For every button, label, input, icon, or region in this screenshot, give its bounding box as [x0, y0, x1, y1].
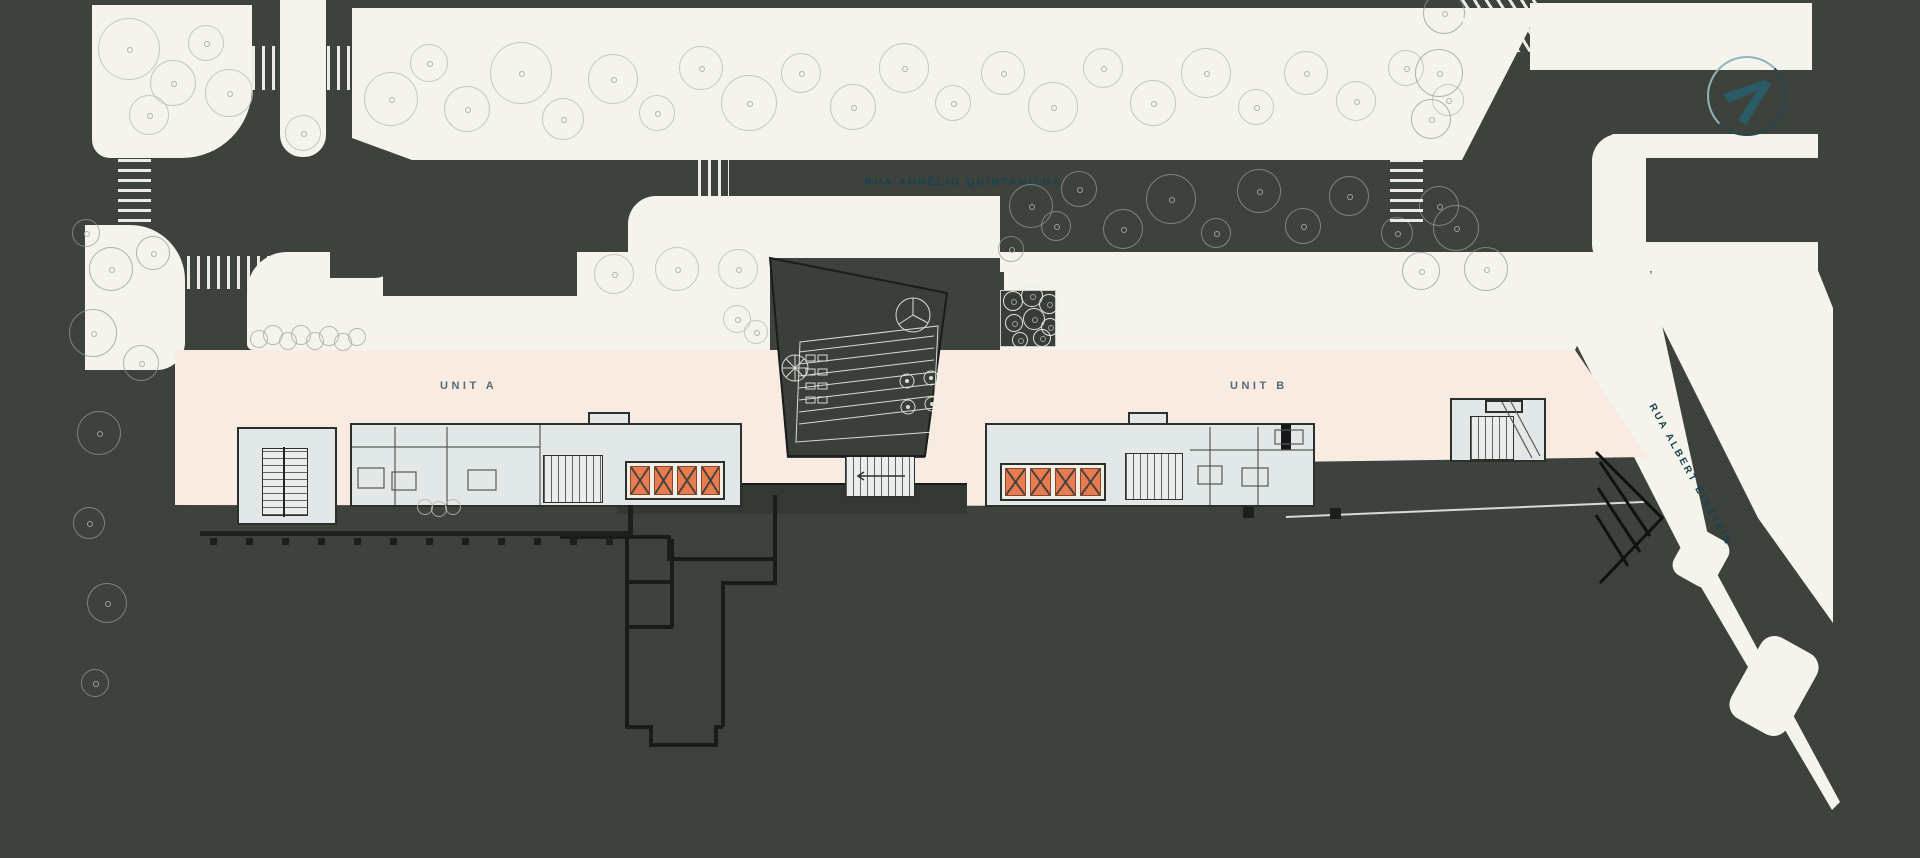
tree-icon — [129, 95, 169, 135]
tree-icon — [1028, 82, 1078, 132]
tree-icon — [1041, 211, 1071, 241]
crosswalk-stripes — [1390, 158, 1423, 222]
elevator-cell — [1055, 468, 1076, 496]
tree-icon — [1083, 48, 1123, 88]
tree-icon — [69, 309, 117, 357]
north-arrow-icon — [1709, 58, 1789, 138]
tree-trunk-dot — [139, 361, 145, 367]
tree-trunk-dot — [93, 681, 99, 687]
tree-icon — [1061, 171, 1097, 207]
tree-trunk-dot — [951, 101, 957, 107]
tree-trunk-dot — [1395, 231, 1401, 237]
tree-trunk-dot — [151, 251, 157, 257]
elevator-cell — [1080, 468, 1101, 496]
tree-icon — [542, 98, 584, 140]
tree-icon — [98, 18, 160, 80]
crosswalk-stripes — [118, 140, 151, 232]
tree-trunk-dot — [799, 71, 805, 77]
tree-trunk-dot — [1254, 105, 1260, 111]
tree-icon — [1146, 174, 1196, 224]
tree-trunk-dot — [1419, 269, 1425, 275]
tree-trunk-dot — [1454, 226, 1460, 232]
elevator-cell — [1030, 468, 1051, 496]
tree-icon — [89, 247, 133, 291]
tree-trunk-dot — [561, 117, 567, 123]
tree-icon — [490, 42, 552, 104]
tree-trunk-dot — [1354, 99, 1360, 105]
tree-trunk-dot — [1121, 227, 1127, 233]
tree-trunk-dot — [754, 330, 760, 336]
tree-trunk-dot — [1051, 105, 1057, 111]
tree-icon — [1237, 169, 1281, 213]
tree-trunk-dot — [84, 231, 90, 237]
tree-trunk-dot — [171, 81, 177, 87]
tree-trunk-dot — [1048, 325, 1054, 331]
tree-icon — [1201, 218, 1231, 248]
tree-icon — [123, 345, 159, 381]
tree-icon — [781, 53, 821, 93]
tree-icon — [285, 115, 321, 151]
elevator-cell — [677, 466, 697, 495]
tree-icon — [1284, 51, 1328, 95]
tree-trunk-dot — [91, 331, 97, 337]
tree-icon — [1181, 48, 1231, 98]
tree-trunk-dot — [1214, 231, 1220, 237]
tree-icon — [1411, 99, 1451, 139]
elevator-cell — [1005, 468, 1026, 496]
tree-trunk-dot — [1012, 321, 1018, 327]
tree-icon — [1329, 176, 1369, 216]
tree-trunk-dot — [1484, 267, 1490, 273]
tree-trunk-dot — [735, 317, 741, 323]
tree-icon — [998, 236, 1024, 262]
bush-icon — [348, 328, 366, 346]
tree-trunk-dot — [1009, 247, 1015, 253]
tree-trunk-dot — [1442, 11, 1448, 17]
tree-icon — [1402, 252, 1440, 290]
tree-trunk-dot — [127, 47, 133, 53]
tree-trunk-dot — [611, 77, 617, 83]
tree-icon — [1103, 209, 1143, 249]
tree-icon — [718, 249, 758, 289]
tree-trunk-dot — [1404, 66, 1410, 72]
tree-icon — [588, 54, 638, 104]
tree-trunk-dot — [1054, 224, 1060, 230]
crosswalk-stripes — [1458, 0, 1538, 52]
tree-trunk-dot — [301, 131, 307, 137]
unit-a-label: UNIT A — [440, 380, 497, 392]
tree-trunk-dot — [655, 111, 661, 117]
tree-icon — [1464, 247, 1508, 291]
tree-trunk-dot — [1047, 302, 1053, 308]
tree-trunk-dot — [1437, 71, 1443, 77]
elevator-cell — [630, 466, 650, 495]
elevator-cell — [701, 466, 721, 495]
bush-icon — [445, 499, 461, 515]
tree-trunk-dot — [1040, 336, 1046, 342]
tree-icon — [1033, 329, 1051, 347]
tree-trunk-dot — [1347, 194, 1353, 200]
tree-icon — [364, 72, 418, 126]
tree-icon — [1415, 49, 1463, 97]
tree-trunk-dot — [1169, 197, 1175, 203]
elevator-bank — [625, 461, 725, 500]
tree-trunk-dot — [1204, 71, 1210, 77]
tree-trunk-dot — [1030, 294, 1036, 300]
tree-trunk-dot — [1301, 224, 1307, 230]
tree-trunk-dot — [147, 113, 153, 119]
elevator-bank — [1000, 463, 1106, 501]
tree-icon — [136, 236, 170, 270]
tree-trunk-dot — [902, 66, 908, 72]
tree-trunk-dot — [1446, 98, 1452, 104]
tree-trunk-dot — [1101, 66, 1107, 72]
tree-icon — [935, 85, 971, 121]
tree-icon — [81, 669, 109, 697]
tree-trunk-dot — [109, 267, 115, 273]
tree-icon — [679, 46, 723, 90]
crosswalk-stripes — [327, 46, 354, 90]
tree-trunk-dot — [465, 107, 471, 113]
tree-trunk-dot — [851, 105, 857, 111]
tree-trunk-dot — [519, 71, 525, 77]
tree-icon — [744, 320, 768, 344]
tree-trunk-dot — [1029, 204, 1035, 210]
tree-trunk-dot — [675, 267, 681, 273]
tree-icon — [77, 411, 121, 455]
tree-trunk-dot — [1018, 338, 1024, 344]
tree-trunk-dot — [1077, 187, 1083, 193]
north-arrow — [1707, 56, 1787, 136]
tree-trunk-dot — [747, 101, 753, 107]
tree-icon — [981, 51, 1025, 95]
tree-trunk-dot — [1304, 71, 1310, 77]
tree-icon — [73, 507, 105, 539]
tree-trunk-dot — [736, 267, 742, 273]
tree-trunk-dot — [97, 431, 103, 437]
tree-trunk-dot — [699, 66, 705, 72]
tree-trunk-dot — [1011, 299, 1017, 305]
tree-icon — [639, 95, 675, 131]
tree-icon — [655, 247, 699, 291]
tree-icon — [87, 583, 127, 623]
tree-icon — [721, 75, 777, 131]
tree-trunk-dot — [87, 521, 93, 527]
tree-icon — [1003, 291, 1023, 311]
tree-trunk-dot — [1151, 101, 1157, 107]
crosswalk-stripes — [698, 156, 729, 196]
crosswalk-stripes — [187, 256, 279, 289]
tree-icon — [1238, 89, 1274, 125]
tree-icon — [410, 44, 448, 82]
tree-icon — [1012, 332, 1028, 348]
elevator-cell — [654, 466, 674, 495]
tree-trunk-dot — [1429, 117, 1435, 123]
tree-icon — [1285, 208, 1321, 244]
tree-icon — [1336, 81, 1376, 121]
tree-trunk-dot — [105, 601, 111, 607]
tree-trunk-dot — [1257, 189, 1263, 195]
crosswalk-stripes — [252, 46, 279, 90]
tree-trunk-dot — [204, 41, 210, 47]
tree-icon — [188, 25, 224, 61]
tree-icon — [444, 86, 490, 132]
tree-icon — [72, 219, 100, 247]
tree-trunk-dot — [227, 91, 233, 97]
tree-icon — [1005, 314, 1023, 332]
site-plan: RUA AURÉLIO QUINTANILHA RUA ALBERT EINST… — [0, 0, 1920, 858]
tree-icon — [1130, 80, 1176, 126]
tree-icon — [1433, 205, 1479, 251]
tree-icon — [594, 254, 634, 294]
tree-trunk-dot — [427, 61, 433, 67]
tree-icon — [830, 84, 876, 130]
unit-b-label: UNIT B — [1230, 380, 1288, 392]
tree-trunk-dot — [1001, 71, 1007, 77]
tree-trunk-dot — [612, 272, 618, 278]
tree-trunk-dot — [1032, 317, 1038, 323]
tree-icon — [879, 43, 929, 93]
tree-trunk-dot — [389, 97, 395, 103]
tree-icon — [205, 69, 253, 117]
